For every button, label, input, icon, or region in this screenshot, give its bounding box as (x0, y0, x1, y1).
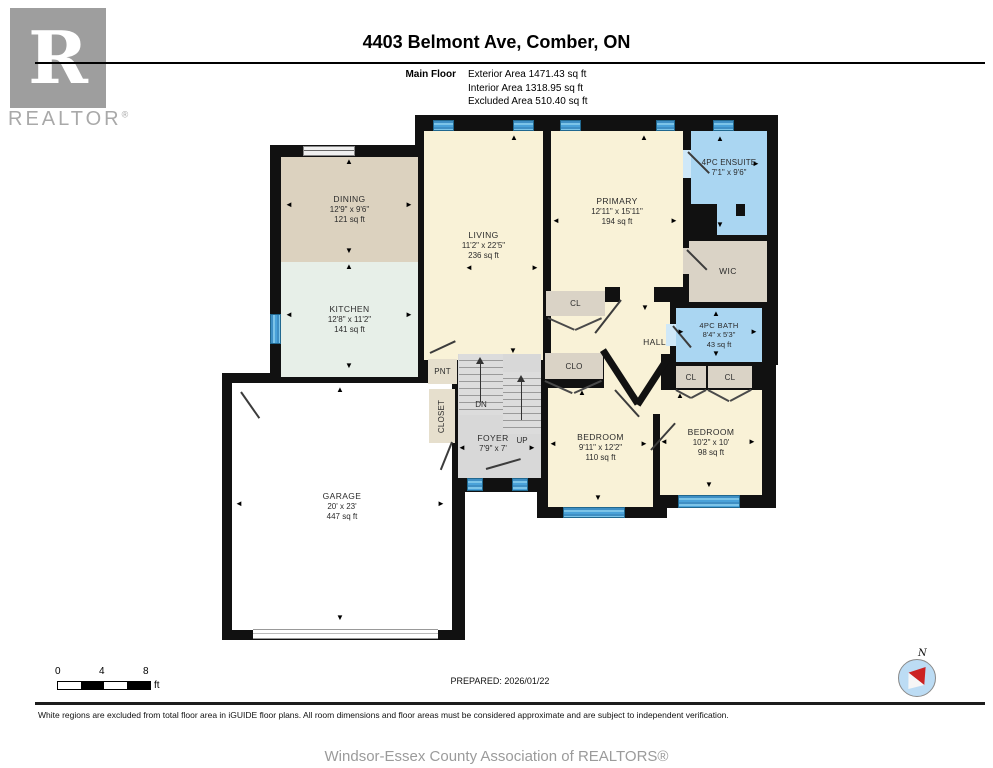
scale-tick-8: 8 (143, 666, 149, 677)
arrow-bath-door: ► (677, 328, 685, 336)
realtor-logo: R (10, 8, 106, 108)
arrow-living-down: ▼ (509, 347, 517, 355)
disclaimer-text: White regions are excluded from total fl… (38, 710, 968, 720)
arrow-dining-left: ◄ (285, 201, 293, 209)
window-bedroom2 (678, 495, 740, 508)
arrow-ensuite-right: ► (752, 160, 760, 168)
footer-divider (35, 702, 985, 705)
arrow-ensuite-up: ▲ (716, 135, 724, 143)
window-living-1 (433, 120, 454, 131)
realtor-logo-letter: R (28, 22, 88, 94)
arrow-bedroom1-down: ▼ (594, 494, 602, 502)
room-garage: GARAGE 20' x 23' 447 sq ft (232, 383, 452, 630)
arrow-bath-right: ► (750, 328, 758, 336)
scale-tick-0: 0 (55, 666, 61, 677)
compass-needle (901, 661, 934, 695)
prepared-date: PREPARED: 2026/01/22 (400, 676, 600, 686)
room-closet: CLOSET (429, 389, 455, 443)
window-living-2 (513, 120, 534, 131)
arrow-primary-left: ◄ (552, 217, 560, 225)
arrow-foyer-left: ◄ (458, 444, 466, 452)
window-primary-1 (560, 120, 581, 131)
arrow-bath-up: ▲ (712, 310, 720, 318)
arrow-dining-right: ► (405, 201, 413, 209)
arrow-bedroom2-down: ▼ (705, 481, 713, 489)
room-bedroom1: BEDROOM 9'11" x 12'2" 110 sq ft (548, 388, 653, 507)
floor-label: Main Floor (405, 68, 456, 109)
stairs-dn-arrow-line (480, 364, 481, 402)
closet-cl-bed1: CL (676, 366, 706, 388)
compass-icon (898, 659, 936, 697)
stairs-up-arrow-line (521, 382, 522, 420)
arrow-bedroom2-right: ► (748, 438, 756, 446)
exterior-area: Exterior Area 1471.43 sq ft (468, 68, 588, 82)
arrow-living-right: ► (531, 264, 539, 272)
arrow-kitchen-down: ▼ (345, 362, 353, 370)
room-pnt: PNT (428, 359, 457, 384)
arrow-bedroom1-up: ▲ (578, 389, 586, 397)
room-kitchen: KITCHEN 12'8" x 11'2" 141 sq ft (281, 262, 418, 377)
association-name: Windsor-Essex County Association of REAL… (0, 748, 993, 765)
registered-mark: ® (122, 109, 132, 119)
arrow-bedroom2-left: ◄ (660, 438, 668, 446)
closet-cl-bed2: CL (708, 366, 752, 388)
room-living: LIVING 11'2" x 22'5" 236 sq ft (424, 131, 543, 360)
garage-door (253, 629, 438, 639)
arrow-garage-up: ▲ (336, 386, 344, 394)
window-kitchen (270, 314, 281, 344)
arrow-garage-right: ► (437, 500, 445, 508)
arrow-dining-up: ▲ (345, 158, 353, 166)
dining-patio-door (303, 146, 355, 156)
arrow-bedroom2-up: ▲ (676, 392, 684, 400)
scale-tick-4: 4 (99, 666, 105, 677)
arrow-kitchen-up: ▲ (345, 263, 353, 271)
arrow-bath-down: ▼ (712, 350, 720, 358)
scale-bar (57, 681, 151, 690)
window-foyer-right (512, 478, 528, 491)
stairs-dn-label: DN (464, 400, 498, 409)
arrow-bedroom1-left: ◄ (549, 440, 557, 448)
arrow-kitchen-right: ► (405, 311, 413, 319)
arrow-dining-down: ▼ (345, 247, 353, 255)
arrow-living-left: ◄ (465, 264, 473, 272)
arrow-garage-left: ◄ (235, 500, 243, 508)
ensuite-partition-wall (736, 204, 745, 216)
closet-cl-primary: CL (546, 291, 605, 316)
realtor-logo-wordmark: REALTOR® (8, 108, 138, 131)
arrow-bedroom1-right: ► (640, 440, 648, 448)
interior-area: Interior Area 1318.95 sq ft (468, 82, 588, 96)
arrow-garage-down: ▼ (336, 614, 344, 622)
floor-area-summary: Main Floor Exterior Area 1471.43 sq ft I… (0, 68, 993, 109)
floor-plan-page: R REALTOR® 4403 Belmont Ave, Comber, ON … (0, 0, 993, 768)
window-primary-2 (656, 120, 675, 131)
stairs-dn-arrow-head (476, 357, 484, 364)
window-bedroom1 (563, 507, 625, 518)
room-wic: WIC (689, 241, 767, 302)
room-primary: PRIMARY 12'11" x 15'11" 194 sq ft (551, 131, 683, 292)
compass-north-label: N (918, 648, 927, 659)
header-divider (35, 62, 985, 64)
arrow-hall-down: ▼ (641, 304, 649, 312)
arrow-foyer-right: ► (528, 444, 536, 452)
arrow-kitchen-left: ◄ (285, 311, 293, 319)
page-title: 4403 Belmont Ave, Comber, ON (0, 32, 993, 53)
window-ensuite (713, 120, 734, 131)
arrow-primary-right: ► (670, 217, 678, 225)
arrow-living-up: ▲ (510, 134, 518, 142)
closet-clo: CLO (545, 353, 603, 379)
arrow-primary-up: ▲ (640, 134, 648, 142)
scale-unit: ft (154, 680, 160, 691)
arrow-ensuite-down: ▼ (716, 221, 724, 229)
room-hall-label: HALL (643, 337, 666, 348)
primary-door-opening (620, 287, 654, 302)
excluded-area: Excluded Area 510.40 sq ft (468, 95, 588, 109)
stairs-up-arrow-head (517, 375, 525, 382)
window-foyer-left (467, 478, 483, 491)
